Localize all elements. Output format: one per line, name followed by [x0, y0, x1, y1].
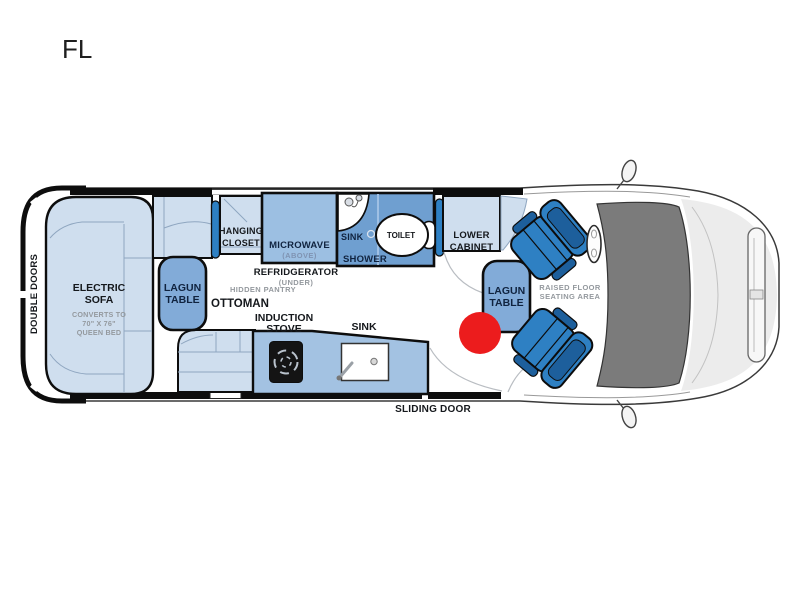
- kitchen-sink: [337, 344, 389, 381]
- refrigerator-label: REFRIDGERATOR: [254, 267, 339, 278]
- floorplan-canvas: FL DOUBLE DOORS ELECTRIC: [0, 0, 800, 600]
- sofa-note-3: QUEEN BED: [77, 328, 122, 337]
- hanging-closet-label-2: CLOSET: [222, 238, 260, 248]
- kitchen-sink-label: SINK: [351, 321, 377, 333]
- raised-floor-label-1: RAISED FLOOR: [539, 283, 601, 292]
- sliding-door-label: SLIDING DOOR: [395, 404, 471, 415]
- toilet-label: TOILET: [387, 231, 415, 240]
- kitchen-counter: [253, 331, 428, 394]
- steering-wheel: [587, 226, 601, 263]
- rear-top-cabinet: [153, 196, 212, 258]
- plan-title: FL: [62, 34, 92, 64]
- lagun-front-label-2: TABLE: [489, 297, 523, 309]
- sliding-door-panel: [428, 392, 501, 399]
- lagun-front-label-1: LAGUN: [488, 285, 525, 297]
- sofa-label-2: SOFA: [85, 294, 114, 306]
- bath-sink-label: SINK: [341, 232, 364, 242]
- grille-badge: [750, 290, 763, 299]
- microwave-label: MICROWAVE: [269, 240, 330, 251]
- microwave-cabinet: MICROWAVE (ABOVE): [262, 193, 337, 263]
- hanging-closet-label-1: HANGING: [219, 226, 263, 236]
- raised-floor-label-2: SEATING AREA: [540, 292, 601, 301]
- lagun-table-rear: LAGUN TABLE: [159, 257, 206, 330]
- rear-doors-label: DOUBLE DOORS: [29, 254, 40, 334]
- location-marker-dot: [459, 312, 501, 354]
- microwave-note: (ABOVE): [282, 251, 317, 260]
- floorplan-svg: FL DOUBLE DOORS ELECTRIC: [0, 0, 800, 600]
- ottoman-label: OTTOMAN: [211, 298, 269, 310]
- sofa-note-2: 70" X 76": [82, 319, 115, 328]
- lower-cabinet-label-1: LOWER: [453, 230, 489, 241]
- rear-bench: [178, 330, 255, 392]
- shower-label: SHOWER: [343, 254, 387, 265]
- electric-sofa: ELECTRIC SOFA CONVERTS TO 70" X 76" QUEE…: [46, 197, 153, 394]
- wall-top-rear: [70, 188, 212, 195]
- windshield-dashboard: [597, 202, 690, 387]
- bathroom: SINK TOILET SHOWER: [337, 193, 435, 266]
- lower-cabinet: LOWER CABINET: [443, 196, 500, 253]
- wall-bottom-step: [210, 393, 241, 399]
- hidden-pantry-label: HIDDEN PANTRY: [230, 285, 296, 294]
- rear-door-notch-mid: [20, 291, 27, 298]
- lagun-rear-label-1: LAGUN: [164, 282, 201, 294]
- lagun-rear-label-2: TABLE: [165, 294, 199, 306]
- hanging-closet: HANGING CLOSET: [219, 196, 263, 254]
- wall-top-front: [433, 188, 523, 195]
- sofa-note-1: CONVERTS TO: [72, 310, 126, 319]
- induction-stove: [270, 342, 303, 383]
- sofa-label-1: ELECTRIC: [73, 282, 126, 294]
- induction-stove-label-2: STOVE: [266, 323, 301, 335]
- lower-cabinet-label-2: CABINET: [450, 242, 494, 253]
